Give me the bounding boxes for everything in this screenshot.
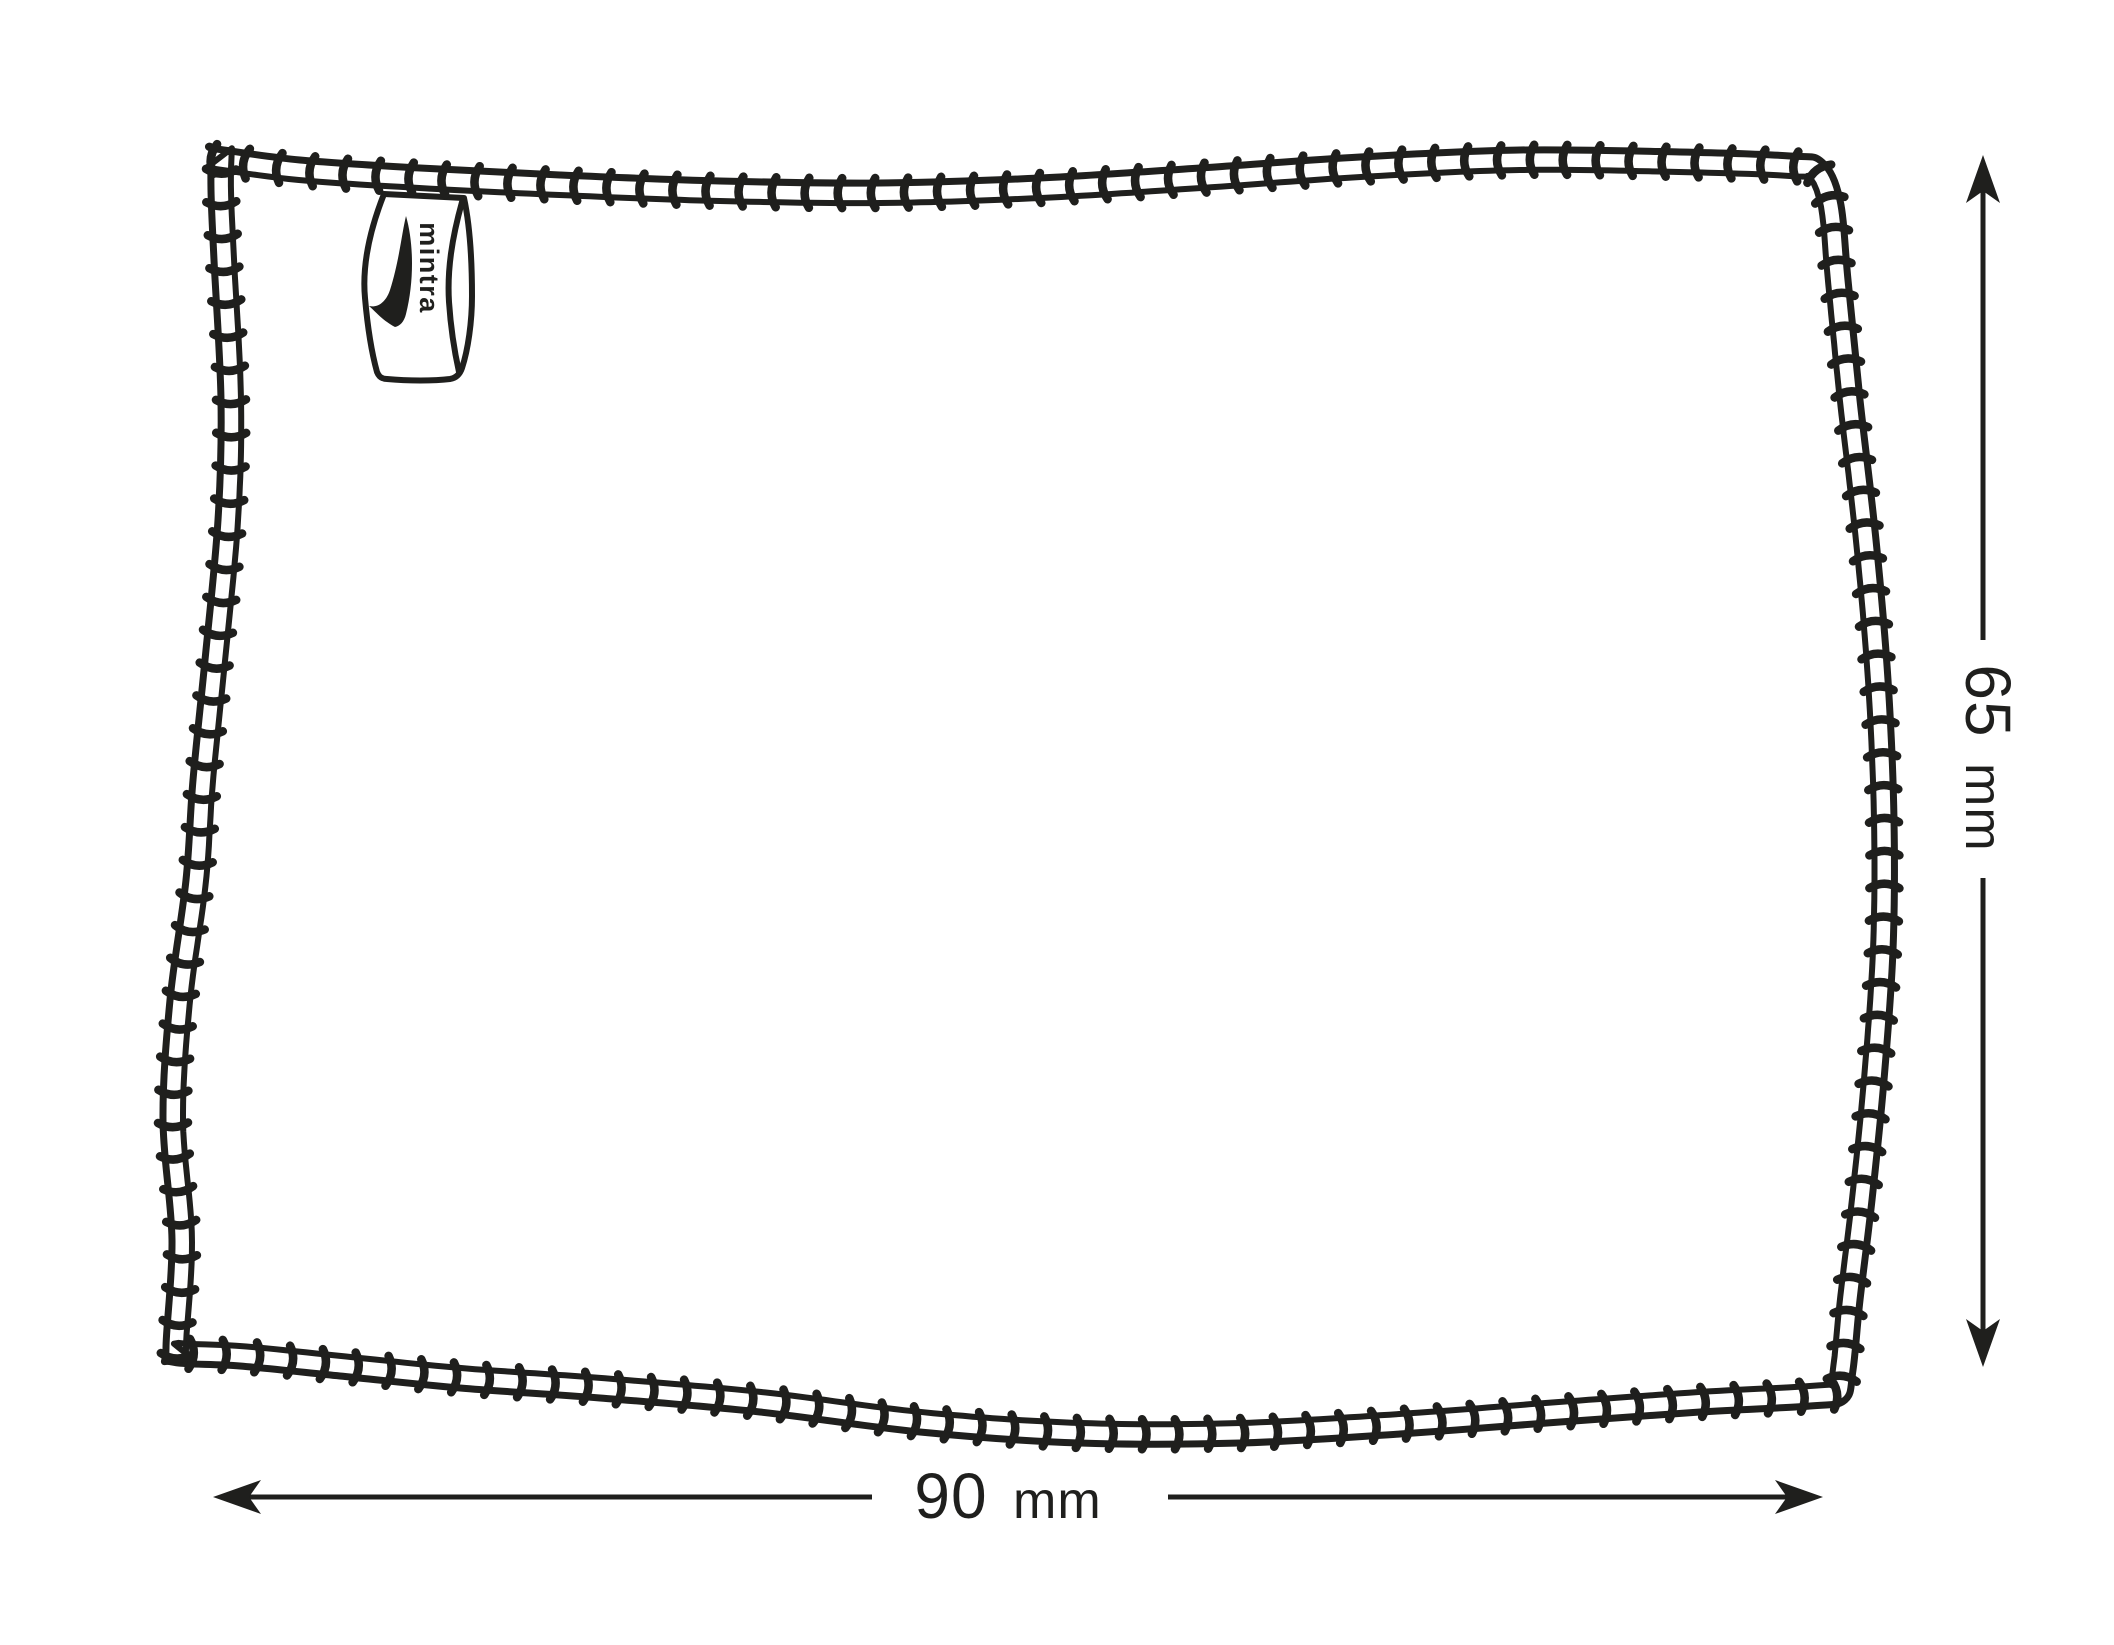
- illustration-canvas: mintra 65 mm: [0, 0, 2114, 1645]
- brand-tag: mintra: [364, 194, 472, 381]
- brand-tag-label: mintra: [414, 222, 444, 314]
- width-dimension-label: 90 mm: [914, 1460, 1101, 1532]
- cloth-dimension-diagram: mintra 65 mm: [0, 0, 2114, 1645]
- width-dimension: 90 mm: [213, 1460, 1823, 1532]
- height-dimension-label: 65 mm: [1952, 664, 2024, 851]
- height-dimension: 65 mm: [1952, 155, 2024, 1367]
